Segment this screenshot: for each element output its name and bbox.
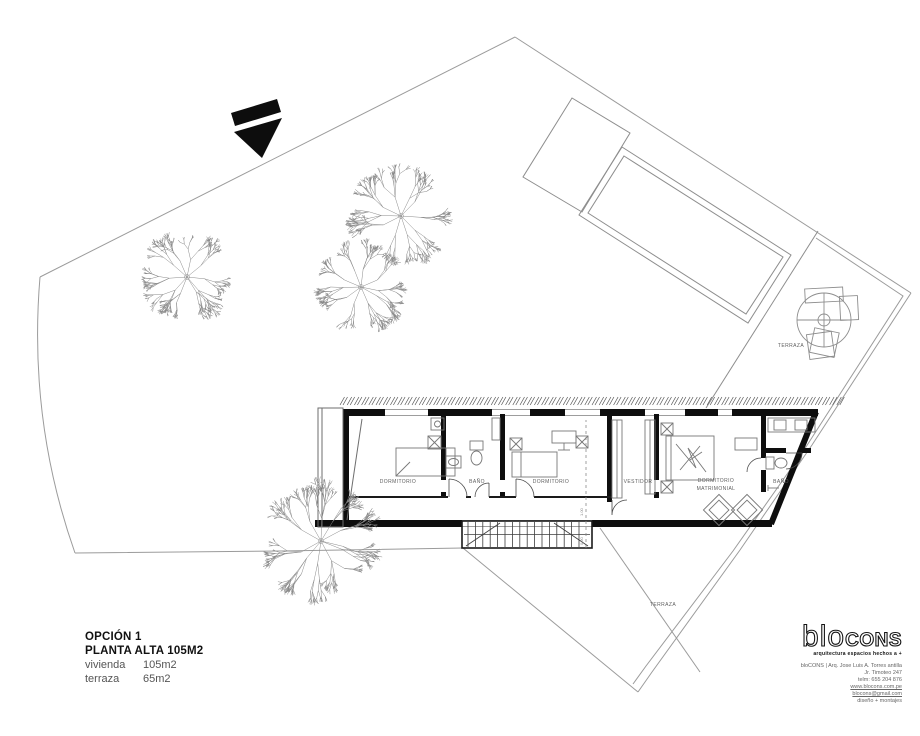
building xyxy=(315,397,844,527)
label-dormitorio-1: DORMITORIO xyxy=(380,479,416,485)
logo-block: bloCONS arquitectura espacios hechos a +… xyxy=(702,620,902,705)
label-terraza-upper: TERRAZA xyxy=(778,343,804,349)
label-bano-1: BAÑO xyxy=(469,478,485,485)
title-block: OPCIÓN 1 PLANTA ALTA 105M2 vivienda 105m… xyxy=(85,630,203,686)
label-dormitorio-master-1: DORMITORIO xyxy=(698,478,734,484)
pool-outer xyxy=(579,147,791,323)
site-boundary xyxy=(38,37,911,692)
area-value: 105m2 xyxy=(143,658,177,672)
area-row: terraza 65m2 xyxy=(85,672,203,686)
label-vestidor: VESTIDOR xyxy=(624,479,653,485)
contact-line: telm: 655 204 876 xyxy=(702,677,902,684)
contact-line: blocons@gmail.com xyxy=(702,691,902,698)
pool-inner xyxy=(588,156,783,314)
pool-zone xyxy=(523,98,818,408)
walls xyxy=(315,409,818,527)
label-terraza-lower: TERRAZA xyxy=(650,602,676,608)
logo-blo: blo xyxy=(802,620,845,653)
west-balcony xyxy=(318,408,362,527)
pergola-hatch xyxy=(340,397,844,405)
label-dormitorio-2: DORMITORIO xyxy=(533,479,569,485)
bed-2 xyxy=(510,431,588,477)
area-row: vivienda 105m2 xyxy=(85,658,203,672)
contact-line: Jr. Timoteo 247 xyxy=(702,670,902,677)
plan-title: PLANTA ALTA 105M2 xyxy=(85,644,203,658)
pool-deck xyxy=(523,98,630,212)
trees xyxy=(141,164,452,606)
contact-line: www.blocons.com.pe xyxy=(702,684,902,691)
tree xyxy=(263,477,382,606)
contact-line: bloCONS | Arq. Jose Luis A. Torres antil… xyxy=(702,663,902,670)
label-dormitorio-master-2: MATRIMONIAL xyxy=(697,486,736,492)
lower-terrace-edge xyxy=(600,528,700,672)
contact-lines: bloCONS | Arq. Jose Luis A. Torres antil… xyxy=(702,663,902,705)
bathroom-1 xyxy=(446,418,500,468)
closets xyxy=(612,420,655,498)
stair-dim-1: 1.00 xyxy=(579,507,584,516)
label-bano-master: BAÑO xyxy=(773,478,789,485)
area-label: vivienda xyxy=(85,658,143,672)
stair-dim-2: 0.90 xyxy=(579,536,584,545)
contact-line: diseño + montajes xyxy=(702,698,902,705)
tree xyxy=(141,232,231,319)
logo-cons: CONS xyxy=(845,630,902,651)
fence-line xyxy=(706,231,818,408)
option-title: OPCIÓN 1 xyxy=(85,630,203,644)
terrace-table-set xyxy=(797,287,859,360)
north-arrow-icon xyxy=(231,99,282,158)
area-label: terraza xyxy=(85,672,143,686)
area-value: 65m2 xyxy=(143,672,171,686)
tree xyxy=(314,238,408,332)
furniture xyxy=(396,418,815,526)
